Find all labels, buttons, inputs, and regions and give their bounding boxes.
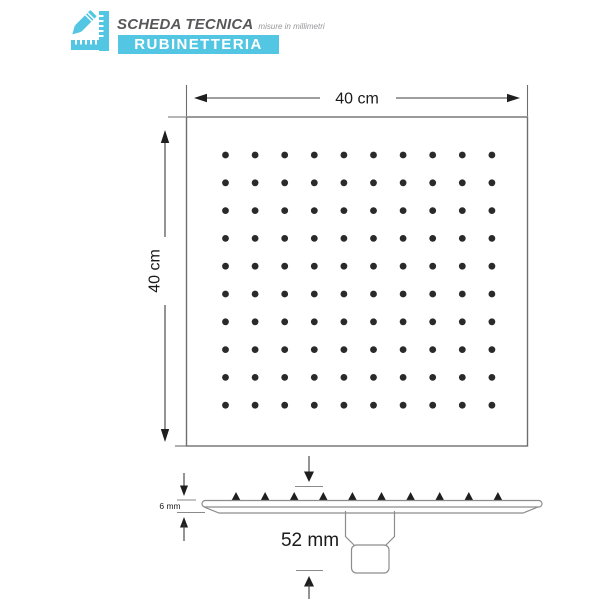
nozzle-dot <box>370 152 377 159</box>
nozzle-dot <box>370 291 377 298</box>
nozzle-dot <box>459 346 466 353</box>
nozzle-dot <box>370 346 377 353</box>
nozzle-dot <box>222 346 229 353</box>
nozzle-dot <box>429 235 436 242</box>
nozzle-dot <box>252 318 259 325</box>
nozzle-dot <box>341 235 348 242</box>
nozzle-dot <box>311 374 318 381</box>
bottom-pointer-arrow <box>296 571 323 600</box>
nozzle-dot <box>281 152 288 159</box>
nozzle-dot <box>341 374 348 381</box>
nozzle-dot <box>252 346 259 353</box>
arrowhead-right-icon <box>507 94 520 102</box>
nozzle-dot <box>311 318 318 325</box>
nozzle-dot <box>429 263 436 270</box>
nozzle-dot <box>489 402 496 409</box>
nozzle-dot <box>252 263 259 270</box>
nozzle-dot <box>341 152 348 159</box>
nozzle-dot <box>400 346 407 353</box>
nozzle-dot <box>281 291 288 298</box>
nozzle-dot <box>489 235 496 242</box>
nozzle-dot <box>281 207 288 214</box>
dimension-height-label: 40 cm <box>147 249 164 293</box>
plate-profile <box>202 501 542 508</box>
nozzle-dot <box>341 179 348 186</box>
nozzle-dot <box>429 346 436 353</box>
nozzle-dot <box>429 179 436 186</box>
arrowhead-left-icon <box>194 94 207 102</box>
dimension-thickness-label: 6 mm <box>159 501 180 511</box>
side-nozzle <box>406 492 415 501</box>
nozzle-dot <box>311 152 318 159</box>
technical-drawing: 40 cm 40 cm <box>0 0 600 600</box>
nozzle-dot <box>459 179 466 186</box>
nozzle-dot <box>222 207 229 214</box>
dimension-connector-label: 52 mm <box>281 530 339 551</box>
nozzle-dot <box>370 263 377 270</box>
nozzle-dot <box>311 346 318 353</box>
nozzle-dot <box>341 346 348 353</box>
nozzle-dot <box>252 291 259 298</box>
nozzle-dot <box>311 235 318 242</box>
nozzle-dot <box>429 152 436 159</box>
nozzle-dot <box>400 402 407 409</box>
side-nozzle <box>493 492 502 501</box>
dimension-height <box>161 117 186 446</box>
nozzle-dot <box>281 346 288 353</box>
nozzle-dot <box>400 263 407 270</box>
nozzle-dot <box>459 263 466 270</box>
arrowhead-up-icon <box>161 130 169 143</box>
shower-head-face <box>187 117 528 446</box>
nozzle-dot <box>370 318 377 325</box>
nozzle-dot <box>281 179 288 186</box>
side-nozzle <box>290 492 299 501</box>
nozzle-dot <box>370 235 377 242</box>
nozzle-dot <box>429 374 436 381</box>
nozzle-dot <box>252 374 259 381</box>
side-nozzle <box>232 492 241 501</box>
nozzle-dot <box>489 207 496 214</box>
nozzle-dot <box>281 402 288 409</box>
nozzle-dot <box>370 207 377 214</box>
nozzle-dot <box>400 374 407 381</box>
nozzle-dot <box>400 318 407 325</box>
nozzle-dot <box>341 291 348 298</box>
side-nozzle-row <box>232 492 503 501</box>
nozzle-dot <box>281 235 288 242</box>
nozzle-dot <box>489 291 496 298</box>
nozzle-dot <box>400 235 407 242</box>
nozzle-dot <box>400 179 407 186</box>
side-nozzle <box>261 492 270 501</box>
nozzle-dot <box>311 291 318 298</box>
nozzle-dot <box>429 291 436 298</box>
nozzle-dot <box>222 374 229 381</box>
nozzle-dot <box>489 346 496 353</box>
nozzle-dot <box>429 318 436 325</box>
side-nozzle <box>348 492 357 501</box>
nozzle-dot <box>311 207 318 214</box>
side-nozzle <box>464 492 473 501</box>
nozzle-dot <box>489 374 496 381</box>
nozzle-dot <box>222 152 229 159</box>
nozzle-dot <box>222 318 229 325</box>
dimension-width-label: 40 cm <box>335 91 379 108</box>
nozzle-dot <box>489 152 496 159</box>
connector-nut <box>352 545 390 573</box>
nozzle-dot <box>459 207 466 214</box>
nozzle-dot <box>341 263 348 270</box>
nozzle-dot <box>459 374 466 381</box>
nozzle-dot <box>459 235 466 242</box>
nozzle-dot <box>222 402 229 409</box>
nozzle-dot <box>252 402 259 409</box>
nozzle-dot <box>252 152 259 159</box>
nozzle-dot <box>429 402 436 409</box>
nozzle-dot <box>222 263 229 270</box>
nozzle-dot <box>281 263 288 270</box>
nozzle-dot <box>370 374 377 381</box>
nozzle-dot <box>489 179 496 186</box>
nozzle-dot <box>459 291 466 298</box>
nozzle-dot <box>370 402 377 409</box>
nozzle-dot <box>252 235 259 242</box>
arrowhead-down-icon <box>161 429 169 442</box>
nozzle-dot <box>489 318 496 325</box>
nozzle-dot <box>281 318 288 325</box>
nozzle-dot <box>252 207 259 214</box>
nozzle-dot <box>222 235 229 242</box>
side-nozzle <box>377 492 386 501</box>
nozzle-dot <box>311 402 318 409</box>
nozzle-dot <box>341 318 348 325</box>
nozzle-dot <box>459 402 466 409</box>
nozzle-dot <box>311 179 318 186</box>
nozzle-dot <box>222 291 229 298</box>
nozzle-dot <box>400 291 407 298</box>
dimension-thickness <box>177 473 205 541</box>
nozzle-dot <box>222 179 229 186</box>
nozzle-dot <box>281 374 288 381</box>
nozzle-dot <box>370 179 377 186</box>
side-nozzle <box>435 492 444 501</box>
nozzle-dot <box>341 402 348 409</box>
nozzle-dot <box>429 207 436 214</box>
side-view: 6 mm 52 mm <box>159 456 542 599</box>
nozzle-dot <box>400 207 407 214</box>
water-connector <box>346 511 395 573</box>
nozzle-dot <box>459 318 466 325</box>
nozzle-dot <box>459 152 466 159</box>
nozzle-dot <box>311 263 318 270</box>
side-nozzle <box>319 492 328 501</box>
nozzle-dot <box>489 263 496 270</box>
nozzle-dot <box>252 179 259 186</box>
plan-view: 40 cm 40 cm <box>147 85 528 446</box>
nozzle-dot <box>341 207 348 214</box>
top-pointer-arrow <box>295 456 323 487</box>
plate-skirt <box>204 507 538 513</box>
nozzle-dot <box>400 152 407 159</box>
